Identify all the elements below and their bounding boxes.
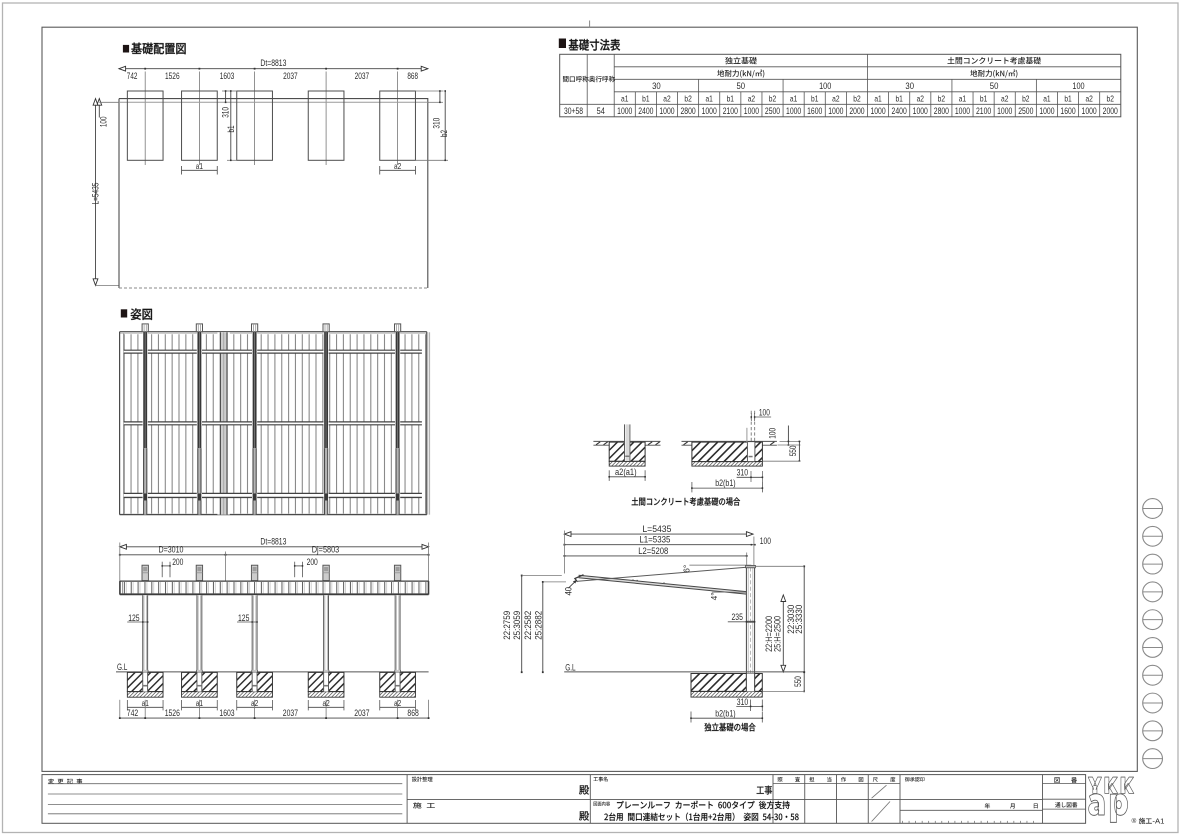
svg-text:1600: 1600 (1060, 106, 1075, 116)
svg-text:22:2582: 22:2582 (523, 611, 533, 640)
svg-text:b2: b2 (1022, 93, 1030, 103)
svg-text:868: 868 (407, 708, 418, 718)
svg-text:30+58: 30+58 (564, 106, 583, 116)
svg-text:100: 100 (768, 428, 778, 439)
svg-text:Dj=5803: Dj=5803 (312, 545, 340, 555)
svg-text:b1: b1 (226, 126, 236, 133)
svg-text:25:H=2500: 25:H=2500 (773, 616, 783, 652)
svg-text:b1: b1 (1064, 93, 1072, 103)
svg-text:550: 550 (788, 446, 798, 457)
svg-text:25:3059: 25:3059 (512, 611, 522, 640)
svg-text:200: 200 (172, 557, 183, 567)
svg-text:Dt=8813: Dt=8813 (260, 58, 286, 68)
svg-text:b2: b2 (853, 93, 861, 103)
svg-text:b1: b1 (811, 93, 819, 103)
svg-text:2037: 2037 (283, 708, 298, 718)
svg-text:310: 310 (432, 118, 442, 129)
svg-text:a1: a1 (790, 93, 798, 103)
svg-text:L1=5335: L1=5335 (639, 535, 670, 545)
svg-text:2000: 2000 (1103, 106, 1118, 116)
svg-text:2100: 2100 (976, 106, 991, 116)
svg-text:a2: a2 (917, 93, 925, 103)
svg-text:G.L: G.L (117, 662, 127, 672)
svg-text:54: 54 (597, 106, 605, 116)
svg-text:b2: b2 (1107, 93, 1115, 103)
svg-text:310: 310 (737, 697, 748, 707)
svg-text:Dt=8813: Dt=8813 (260, 536, 286, 546)
svg-text:100: 100 (819, 81, 831, 91)
svg-text:b2: b2 (684, 93, 692, 103)
svg-text:G.L: G.L (565, 662, 575, 672)
svg-text:2400: 2400 (892, 106, 907, 116)
svg-text:a2(a1): a2(a1) (615, 467, 637, 477)
svg-text:125: 125 (238, 613, 249, 623)
svg-text:6°: 6° (682, 565, 692, 573)
svg-text:30: 30 (652, 81, 661, 91)
svg-text:742: 742 (127, 708, 138, 718)
svg-text:2800: 2800 (934, 106, 949, 116)
svg-text:a1: a1 (196, 161, 203, 171)
svg-text:®: ® (1132, 817, 1137, 825)
svg-text:a1: a1 (959, 93, 967, 103)
svg-text:a2: a2 (832, 93, 840, 103)
svg-text:2037: 2037 (354, 708, 369, 718)
svg-text:a1: a1 (1043, 93, 1051, 103)
svg-text:1000: 1000 (744, 106, 759, 116)
svg-text:b2: b2 (938, 93, 946, 103)
svg-text:-A1: -A1 (1152, 816, 1164, 825)
svg-text:310: 310 (220, 107, 230, 118)
svg-text:742: 742 (127, 71, 138, 81)
svg-text:2037: 2037 (283, 71, 298, 81)
svg-text:a2: a2 (663, 93, 671, 103)
svg-text:100: 100 (1072, 81, 1084, 91)
svg-text:25:2882: 25:2882 (533, 611, 543, 640)
svg-text:a1: a1 (874, 93, 882, 103)
svg-text:1000: 1000 (702, 106, 717, 116)
svg-text:a1: a1 (621, 93, 629, 103)
svg-text:2000: 2000 (849, 106, 864, 116)
svg-text:22:2759: 22:2759 (502, 611, 512, 640)
svg-text:100: 100 (759, 407, 770, 417)
svg-text:2100: 2100 (723, 106, 738, 116)
svg-text:2037: 2037 (355, 71, 370, 81)
svg-text:b1: b1 (642, 93, 650, 103)
svg-text:b1: b1 (727, 93, 735, 103)
svg-text:D=3010: D=3010 (159, 545, 184, 555)
svg-text:1000: 1000 (659, 106, 674, 116)
svg-text:a2: a2 (748, 93, 756, 103)
svg-text:1000: 1000 (997, 106, 1012, 116)
svg-text:125: 125 (128, 613, 139, 623)
svg-text:1000: 1000 (786, 106, 801, 116)
svg-text:100: 100 (98, 117, 108, 128)
svg-text:1526: 1526 (165, 71, 180, 81)
svg-text:30: 30 (905, 81, 914, 91)
svg-text:1603: 1603 (220, 71, 235, 81)
svg-text:200: 200 (307, 557, 318, 567)
svg-text:235: 235 (732, 612, 743, 622)
svg-text:1600: 1600 (807, 106, 822, 116)
svg-text:b2(b1): b2(b1) (715, 478, 735, 488)
svg-text:1000: 1000 (617, 106, 632, 116)
svg-text:50: 50 (737, 81, 746, 91)
svg-text:868: 868 (407, 71, 418, 81)
svg-text:1603: 1603 (219, 708, 234, 718)
svg-text:4°: 4° (709, 592, 719, 600)
svg-text:2500: 2500 (1018, 106, 1033, 116)
svg-text:1000: 1000 (1082, 106, 1097, 116)
svg-text:b1: b1 (895, 93, 903, 103)
svg-text:25:3330: 25:3330 (794, 605, 804, 634)
svg-text:50: 50 (990, 81, 999, 91)
svg-text:L=5435: L=5435 (90, 183, 100, 205)
svg-text:100: 100 (760, 536, 771, 546)
svg-text:L2=5208: L2=5208 (638, 546, 668, 556)
svg-text:a1: a1 (705, 93, 713, 103)
svg-text:1526: 1526 (165, 708, 180, 718)
svg-text:550: 550 (793, 676, 803, 687)
svg-text:1000: 1000 (955, 106, 970, 116)
svg-text:a2: a2 (1085, 93, 1093, 103)
svg-text:b2(b1): b2(b1) (715, 708, 735, 718)
svg-text:310: 310 (737, 468, 748, 478)
svg-text:2500: 2500 (765, 106, 780, 116)
svg-text:1000: 1000 (828, 106, 843, 116)
svg-text:1000: 1000 (870, 106, 885, 116)
svg-text:b1: b1 (980, 93, 988, 103)
svg-text:2800: 2800 (680, 106, 695, 116)
svg-text:1000: 1000 (1039, 106, 1054, 116)
svg-text:a2: a2 (1001, 93, 1009, 103)
svg-text:2400: 2400 (638, 106, 653, 116)
svg-text:1000: 1000 (913, 106, 928, 116)
svg-text:b2: b2 (769, 93, 777, 103)
svg-text:a2: a2 (394, 161, 401, 171)
svg-text:b2: b2 (439, 130, 449, 137)
svg-text:L=5435: L=5435 (642, 524, 671, 534)
